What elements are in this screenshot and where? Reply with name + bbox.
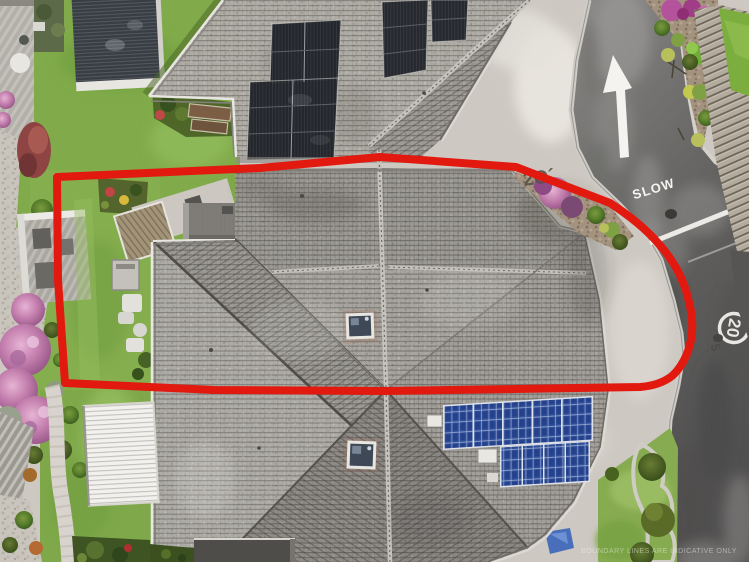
svg-text:BOUNDARY LINES ARE INDICATIVE: BOUNDARY LINES ARE INDICATIVE ONLY bbox=[581, 546, 737, 555]
svg-text:20: 20 bbox=[723, 317, 745, 339]
